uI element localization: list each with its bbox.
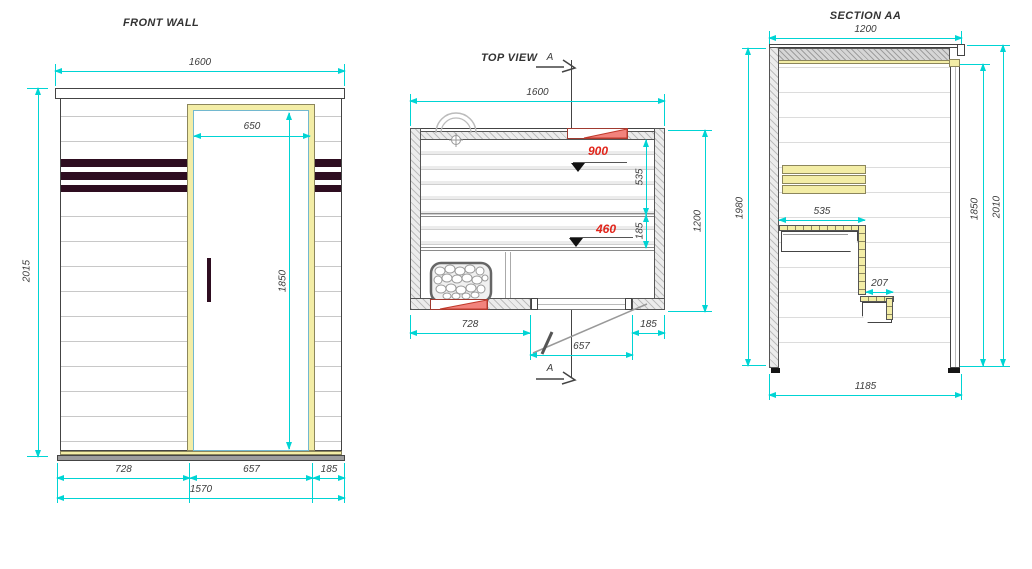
dimension-line-floor-width xyxy=(769,395,962,396)
bench-seat-slats xyxy=(779,225,866,231)
dimension-label-outer-height: 2010 xyxy=(992,196,1003,218)
foot-right xyxy=(948,368,960,373)
dimension-label-inner-height: 1850 xyxy=(970,198,981,220)
dimension-label-step-width: 207 xyxy=(857,278,902,289)
vent-cap xyxy=(957,44,965,56)
section-aa-view: SECTION AA 1200 535 207 xyxy=(0,0,1032,569)
step-front-slat xyxy=(886,298,893,320)
backrest-board xyxy=(782,185,866,194)
dimension-line-bench-width xyxy=(779,220,865,221)
wall-back xyxy=(769,47,779,368)
dimension-label-bench-width: 535 xyxy=(779,206,865,217)
vent-block xyxy=(949,59,960,67)
bench-support-line xyxy=(783,234,848,235)
dimension-line-width xyxy=(769,38,962,39)
backrest-board xyxy=(782,175,866,184)
dimension-label-width: 1200 xyxy=(769,24,962,35)
dimension-line-step-width xyxy=(866,292,893,293)
dimension-label-height-left: 1980 xyxy=(735,197,746,219)
dimension-line-outer-height xyxy=(1003,45,1004,366)
dimension-line-height-left xyxy=(748,48,749,366)
foot-left xyxy=(771,368,780,373)
wall-front-line xyxy=(955,61,956,367)
dimension-line-inner-height xyxy=(983,64,984,366)
dimension-label-floor-width: 1185 xyxy=(769,381,962,392)
section-aa-title: SECTION AA xyxy=(769,10,962,22)
sauna-drawing-sheet: FRONT WALL 1600 650 1850 2015 xyxy=(0,0,1032,569)
backrest-board xyxy=(782,165,866,174)
